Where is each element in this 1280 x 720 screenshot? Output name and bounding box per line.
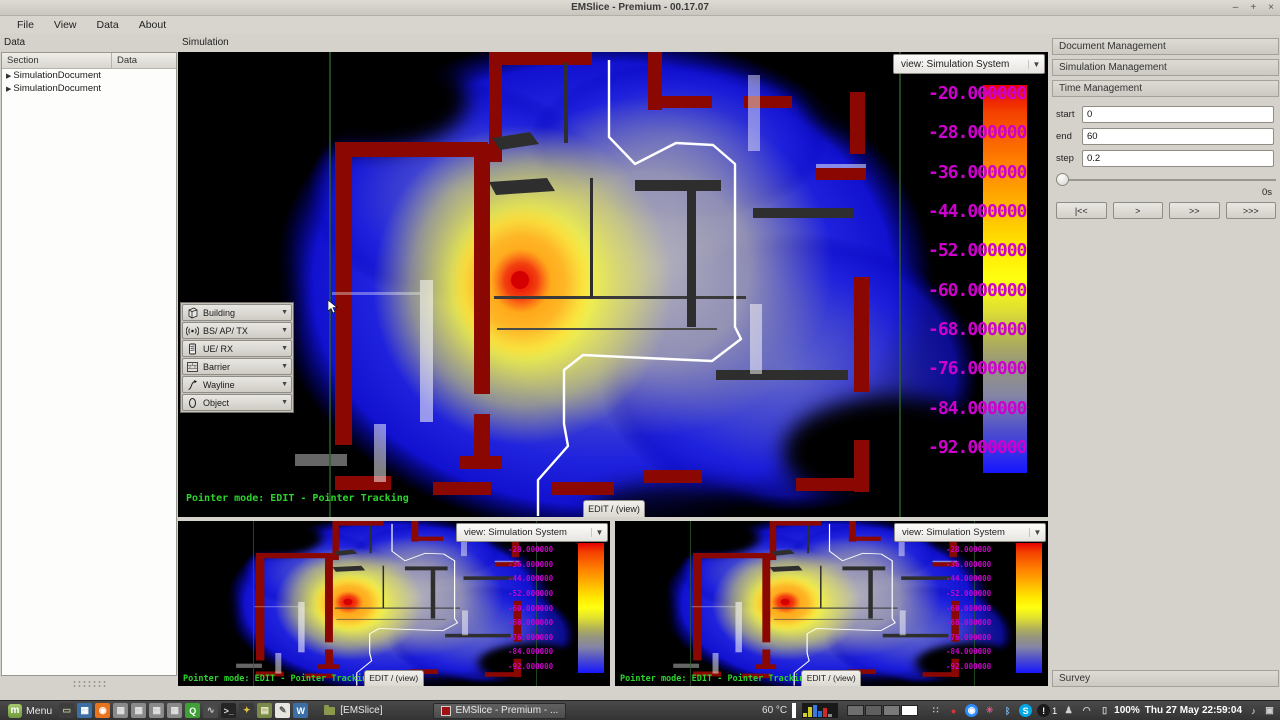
workspace-4-active[interactable] (901, 705, 918, 716)
color-scale-bar (578, 543, 604, 673)
color-scale-label: -68.000000 (508, 618, 553, 627)
pointer-mode-status: Pointer mode: EDIT - Pointer Tracking (183, 674, 372, 684)
meeting-tray-icon[interactable]: ◉ (965, 704, 978, 717)
color-scale-label: -44.000000 (508, 574, 553, 583)
data-panel-title: Data (0, 34, 178, 52)
tool-palette: Building ▼ BS/ AP/ TX ▼ UE/ RX ▼ Barrier… (180, 302, 294, 413)
system-tray: ∷●◉✳ᛒS!1♟◠▯ (929, 704, 1111, 717)
window-grid-icon-3[interactable]: ▦ (149, 703, 164, 718)
window-grid-icon-2[interactable]: ▦ (131, 703, 146, 718)
title-bar[interactable]: EMSlice - Premium - 00.17.07 – + × (0, 0, 1280, 16)
bottom-strip (178, 686, 1048, 700)
color-scale-label: -84.000000 (928, 400, 1026, 418)
color-scale-label: -36.000000 (508, 560, 553, 569)
image-viewer-icon[interactable]: ▦ (77, 703, 92, 718)
maximize-icon[interactable]: + (1250, 0, 1256, 16)
draw-tool-icon[interactable]: ∿ (203, 703, 218, 718)
taskbar: m Menu ▭▦◉▦▦▦▦Q∿>_✦▤✎W [EMSlice] EMSlice… (0, 700, 1280, 720)
view-selector-dropdown[interactable]: view: Simulation System ▼ (894, 523, 1046, 542)
heatmap-scene-svg (178, 52, 1048, 517)
workspace-3[interactable] (883, 705, 900, 716)
activity-tray-icon[interactable]: ✳ (983, 704, 996, 717)
clock[interactable]: Thu 27 May 22:59:04 (1145, 705, 1242, 716)
step-forward-button[interactable]: > (1113, 202, 1164, 219)
object-tool-button[interactable]: Object ▼ (182, 394, 292, 411)
edit-view-button[interactable]: EDIT / (view) (364, 670, 424, 686)
updates-tray-icon[interactable]: ! (1037, 704, 1050, 717)
color-scale-label: -28.000000 (508, 545, 553, 554)
pointer-mode-status: Pointer mode: EDIT - Pointer Tracking (186, 493, 409, 504)
tree-header: Section Data (2, 53, 176, 69)
simulation-panel-title: Simulation (178, 34, 1048, 52)
thermometer-bar (792, 703, 796, 718)
tree-col-data[interactable]: Data (112, 53, 137, 68)
mint-menu-button[interactable]: m Menu (4, 702, 56, 720)
chevron-down-icon[interactable]: ▼ (281, 345, 288, 352)
wayline-tool-button[interactable]: Wayline ▼ (182, 376, 292, 393)
firefox-icon[interactable]: ◉ (95, 703, 110, 718)
menu-bar: File View Data About (0, 16, 1280, 34)
updates-count: 1 (1052, 706, 1057, 716)
close-icon[interactable]: × (1268, 0, 1274, 16)
ue-rx-tool-button[interactable]: UE/ RX ▼ (182, 340, 292, 357)
workspace-2[interactable] (865, 705, 882, 716)
antenna-icon (186, 325, 199, 337)
data-tree-table[interactable]: Section Data ▶SimulationDocument ▶Simula… (1, 52, 177, 676)
device-icon (186, 343, 199, 355)
view-selector-dropdown[interactable]: view: Simulation System ▼ (893, 54, 1045, 74)
window-grid-icon-1[interactable]: ▦ (113, 703, 128, 718)
color-scale-label: -92.000000 (946, 662, 991, 671)
tree-row[interactable]: ▶SimulationDocument (2, 69, 176, 82)
cpu-graph[interactable] (802, 703, 838, 718)
time-slider[interactable] (1056, 173, 1276, 187)
color-scale-label: -20.000000 (928, 85, 1026, 103)
menu-data[interactable]: Data (88, 18, 128, 32)
window-grid-icon-4[interactable]: ▦ (167, 703, 182, 718)
start-label: start (1052, 109, 1082, 120)
color-scale-labels: -20.000000-28.000000-36.000000-44.000000… (928, 85, 1026, 457)
color-scale-label: -52.000000 (946, 589, 991, 598)
color-scale-label: -84.000000 (946, 647, 991, 656)
sub-simulation-view-right[interactable]: view: Simulation System ▼ -28.000000-36.… (615, 521, 1048, 686)
barrier-tool-button[interactable]: Barrier ▼ (182, 358, 292, 375)
battery-tray-icon[interactable]: ▯ (1098, 704, 1111, 717)
step-field[interactable] (1082, 150, 1274, 167)
color-scale-label: -52.000000 (928, 242, 1026, 260)
splitter-grip[interactable] (72, 680, 108, 688)
color-scale-label: -76.000000 (508, 633, 553, 642)
color-scale-label: -28.000000 (928, 124, 1026, 142)
color-scale-label: -36.000000 (928, 164, 1026, 182)
window-title: EMSlice - Premium - 00.17.07 (0, 2, 1280, 13)
chevron-down-icon: ▼ (1028, 60, 1044, 69)
record-tray-icon[interactable]: ● (947, 704, 960, 717)
color-scale-label: -60.000000 (928, 282, 1026, 300)
color-scale-label: -28.000000 (946, 545, 991, 554)
color-scale-label: -60.000000 (508, 604, 553, 613)
elapsed-time: 0s (1262, 187, 1272, 198)
management-panel: Document Management Simulation Managemen… (1052, 34, 1280, 700)
edit-view-button[interactable]: EDIT / (view) (801, 670, 861, 686)
battery-percent: 100% (1114, 705, 1140, 716)
color-scale-label: -92.000000 (928, 439, 1026, 457)
menu-view[interactable]: View (45, 18, 86, 32)
main-simulation-view[interactable]: view: Simulation System ▼ -20.000000-28.… (178, 52, 1048, 517)
mouse-cursor (328, 300, 338, 314)
folder-icon (324, 707, 335, 715)
volume-icon[interactable]: ♪ (1247, 704, 1260, 717)
building-icon (186, 307, 199, 319)
color-scale-label: -36.000000 (946, 560, 991, 569)
folder-icon[interactable]: ▤ (257, 703, 272, 718)
wiki-icon[interactable]: W (293, 703, 308, 718)
barrier-icon (186, 361, 199, 373)
minimize-icon[interactable]: – (1233, 0, 1239, 16)
display-icon[interactable]: ▣ (1263, 704, 1276, 717)
skype-tray-icon[interactable]: S (1019, 704, 1032, 717)
chevron-down-icon[interactable]: ▼ (281, 309, 288, 316)
color-scale-label: -52.000000 (508, 589, 553, 598)
pointer-mode-status: Pointer mode: EDIT - Pointer Tracking (620, 674, 809, 684)
menu-file[interactable]: File (8, 18, 43, 32)
temperature-readout: 60 °C (762, 705, 787, 716)
step-label: step (1052, 153, 1082, 164)
show-desktop-icon[interactable]: ▭ (59, 703, 74, 718)
section-document-management[interactable]: Document Management (1052, 38, 1279, 55)
workspace-1[interactable] (847, 705, 864, 716)
workspace-switcher[interactable] (847, 705, 918, 716)
wifi-tray-icon[interactable]: ◠ (1080, 704, 1093, 717)
chevron-down-icon: ▼ (1029, 528, 1045, 537)
chevron-down-icon[interactable]: ▼ (281, 327, 288, 334)
color-scale-label: -68.000000 (928, 321, 1026, 339)
color-scale-labels: -28.000000-36.000000-44.000000-52.000000… (946, 545, 991, 671)
quicklaunch-icon[interactable]: Q (185, 703, 200, 718)
section-simulation-management[interactable]: Simulation Management (1052, 59, 1279, 76)
emslice-window: EMSlice - Premium - 00.17.07 – + × File … (0, 0, 1280, 720)
bs-ap-tx-tool-button[interactable]: BS/ AP/ TX ▼ (182, 322, 292, 339)
emslice-app-icon (441, 706, 451, 716)
mint-logo-icon: m (8, 704, 22, 718)
data-panel: Data Section Data ▶SimulationDocument ▶S… (0, 34, 178, 700)
color-scale-label: -76.000000 (928, 360, 1026, 378)
chevron-down-icon[interactable]: ▼ (281, 399, 288, 406)
bluetooth-tray-icon[interactable]: ᛒ (1001, 704, 1014, 717)
slider-groove (1056, 179, 1276, 181)
terminal-icon[interactable]: >_ (221, 703, 236, 718)
menu-about[interactable]: About (130, 18, 175, 32)
object-icon (186, 397, 199, 409)
color-scale-label: -44.000000 (928, 203, 1026, 221)
color-scale-bar (1016, 543, 1042, 673)
fast-forward-button[interactable]: >> (1169, 202, 1220, 219)
end-field[interactable] (1082, 128, 1274, 145)
section-time-management[interactable]: Time Management (1052, 80, 1279, 97)
building-tool-button[interactable]: Building ▼ (182, 304, 292, 321)
tree-col-section[interactable]: Section (2, 53, 112, 68)
expand-arrow-icon[interactable]: ▶ (6, 86, 11, 93)
edit-view-button[interactable]: EDIT / (view) (583, 500, 645, 517)
user-tray-icon[interactable]: ♟ (1062, 704, 1075, 717)
emslice-group-button[interactable]: [EMSlice] (317, 703, 389, 719)
color-scale-label: -92.000000 (508, 662, 553, 671)
text-editor-icon[interactable]: ✎ (275, 703, 290, 718)
media-tool-icon[interactable]: ✦ (239, 703, 254, 718)
chevron-down-icon[interactable]: ▼ (281, 381, 288, 388)
slider-handle[interactable] (1056, 173, 1069, 186)
color-scale-label: -68.000000 (946, 618, 991, 627)
sub-simulation-view-left[interactable]: view: Simulation System ▼ -28.000000-36.… (178, 521, 610, 686)
wayline-icon (186, 379, 199, 391)
color-scale-label: -60.000000 (946, 604, 991, 613)
heatmap-scene (178, 52, 1048, 517)
tree-row[interactable]: ▶SimulationDocument (2, 82, 176, 95)
active-window-button[interactable]: EMSlice - Premium - ... (433, 703, 567, 719)
end-label: end (1052, 131, 1082, 142)
chevron-down-icon[interactable]: ▼ (281, 363, 288, 370)
rewind-button[interactable]: |<< (1056, 202, 1107, 219)
color-scale-label: -44.000000 (946, 574, 991, 583)
expand-arrow-icon[interactable]: ▶ (6, 73, 11, 80)
fastest-forward-button[interactable]: >>> (1226, 202, 1277, 219)
color-scale-label: -76.000000 (946, 633, 991, 642)
dropbox-tray-icon[interactable]: ∷ (929, 704, 942, 717)
color-scale-label: -84.000000 (508, 647, 553, 656)
color-scale-labels: -28.000000-36.000000-44.000000-52.000000… (508, 545, 553, 671)
chevron-down-icon: ▼ (591, 528, 607, 537)
view-selector-dropdown[interactable]: view: Simulation System ▼ (456, 523, 608, 542)
section-survey[interactable]: Survey (1052, 670, 1279, 687)
start-field[interactable] (1082, 106, 1274, 123)
